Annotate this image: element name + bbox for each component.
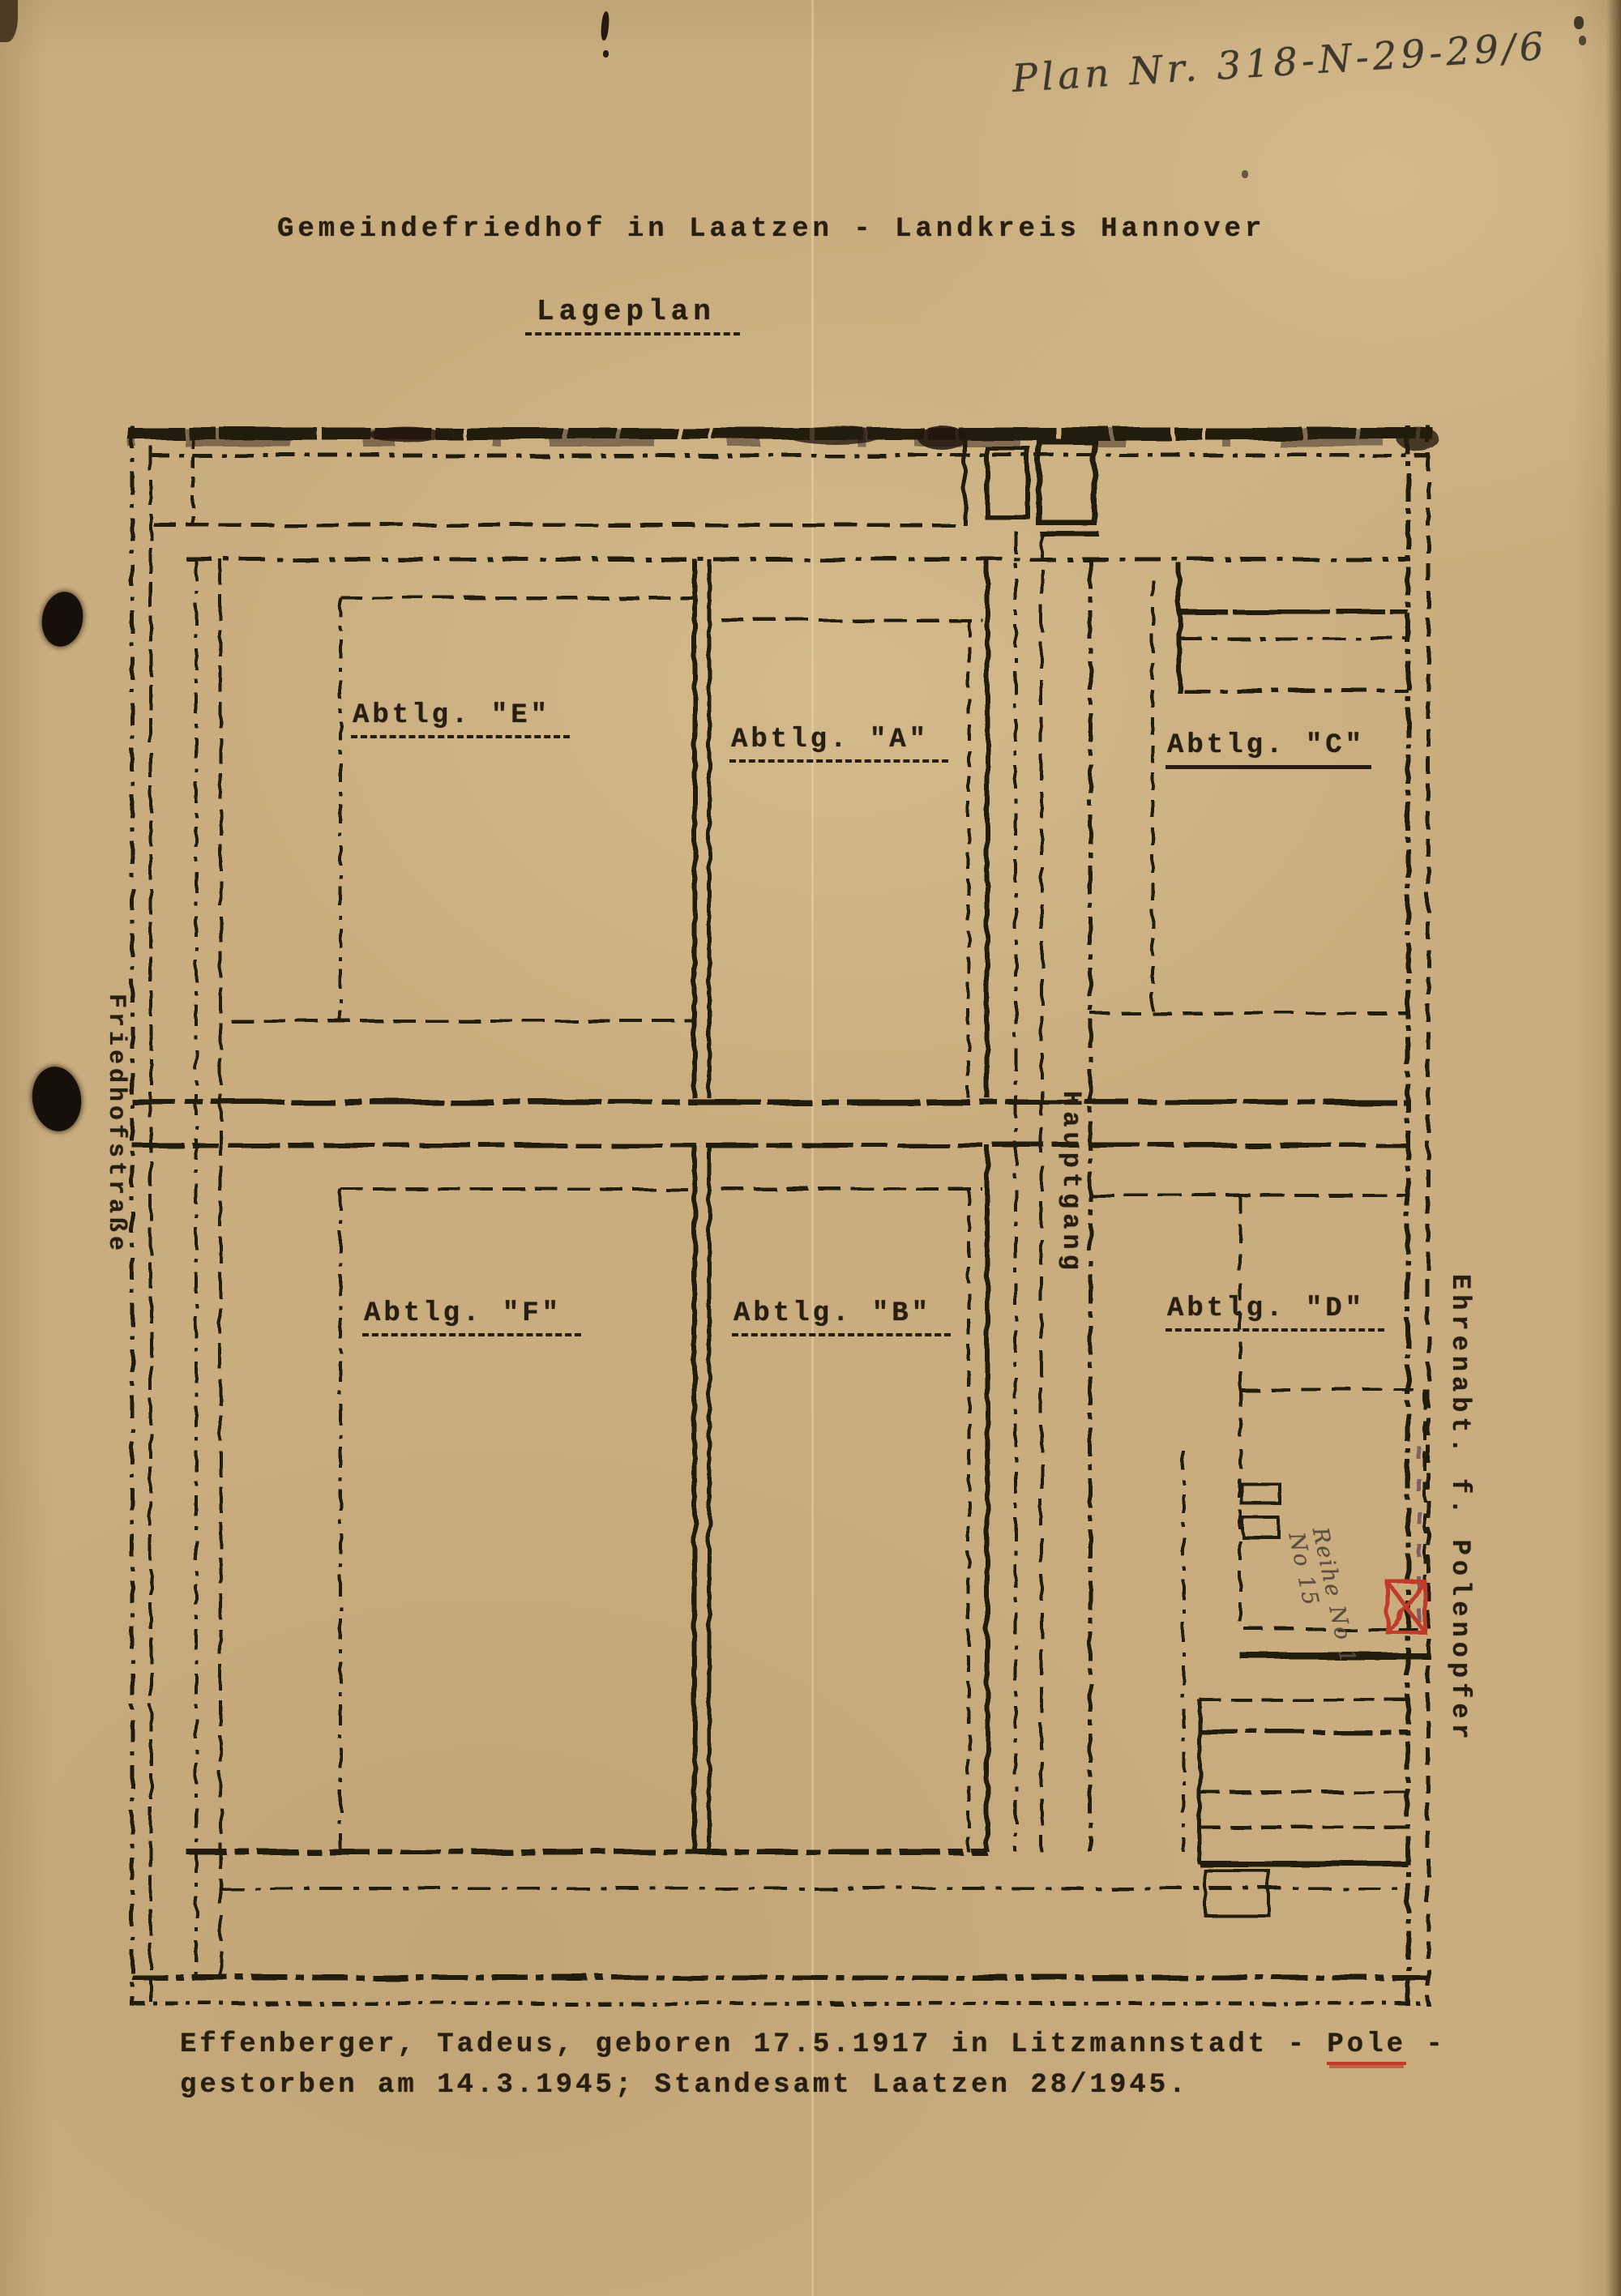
section-f-outline — [340, 1145, 695, 1852]
corner-ink-mark — [0, 0, 18, 42]
document-subtitle: Lageplan — [525, 295, 740, 336]
footer-line-2: gestorben am 14.3.1945; Standesamt Laatz… — [180, 2065, 1446, 2106]
hole-punch — [28, 1063, 86, 1135]
section-label-b: Abtlg. "B" — [732, 1298, 951, 1336]
section-label-c: Abtlg. "C" — [1165, 730, 1371, 769]
footer-record-text: Effenberger, Tadeus, geboren 17.5.1917 i… — [180, 2024, 1446, 2106]
section-c-outline — [1090, 563, 1410, 1017]
section-label-f: Abtlg. "F" — [362, 1298, 581, 1336]
footer-nationality-highlighted: Pole — [1327, 2029, 1406, 2065]
section-label-e: Abtlg. "E" — [351, 700, 570, 738]
ink-speck — [600, 11, 609, 41]
footer-line-1-pre: Effenberger, Tadeus, geboren 17.5.1917 i… — [180, 2029, 1327, 2060]
scan-edge-shadow — [1606, 0, 1621, 2296]
ink-speck — [1574, 16, 1584, 29]
section-b-outline — [709, 1145, 987, 1852]
top-strip-outline — [154, 438, 964, 525]
section-label-a: Abtlg. "A" — [729, 725, 948, 763]
document-title: Gemeindefriedhof in Laatzen - Landkreis … — [277, 214, 1265, 245]
ink-speck — [1579, 36, 1586, 45]
ink-speck — [1242, 170, 1248, 178]
middle-path-lines — [132, 1102, 1410, 1145]
plan-number-handwritten: Plan Nr. 318-N-29-29/6 — [1011, 24, 1549, 101]
memorial-label: Ehrenabt. f. Polenopfer — [1445, 1274, 1475, 1744]
main-path-label: Hauptgang — [1056, 1091, 1086, 1275]
footer-line-1-post: - — [1406, 2029, 1446, 2060]
path-lines-left — [186, 559, 1410, 1977]
section-a-outline — [709, 559, 987, 1098]
section-label-d: Abtlg. "D" — [1165, 1293, 1384, 1332]
footer-line-1: Effenberger, Tadeus, geboren 17.5.1917 i… — [180, 2024, 1446, 2065]
section-e-outline — [231, 559, 695, 1098]
street-label: Friedhofstraße — [102, 994, 130, 1255]
hole-punch — [37, 588, 87, 650]
cemetery-site-plan-drawing — [122, 413, 1451, 2026]
ink-speck — [603, 50, 609, 58]
plan-outer-border — [128, 425, 1439, 2006]
scanned-document-page: Plan Nr. 318-N-29-29/6 Gemeindefriedhof … — [0, 0, 1621, 2296]
